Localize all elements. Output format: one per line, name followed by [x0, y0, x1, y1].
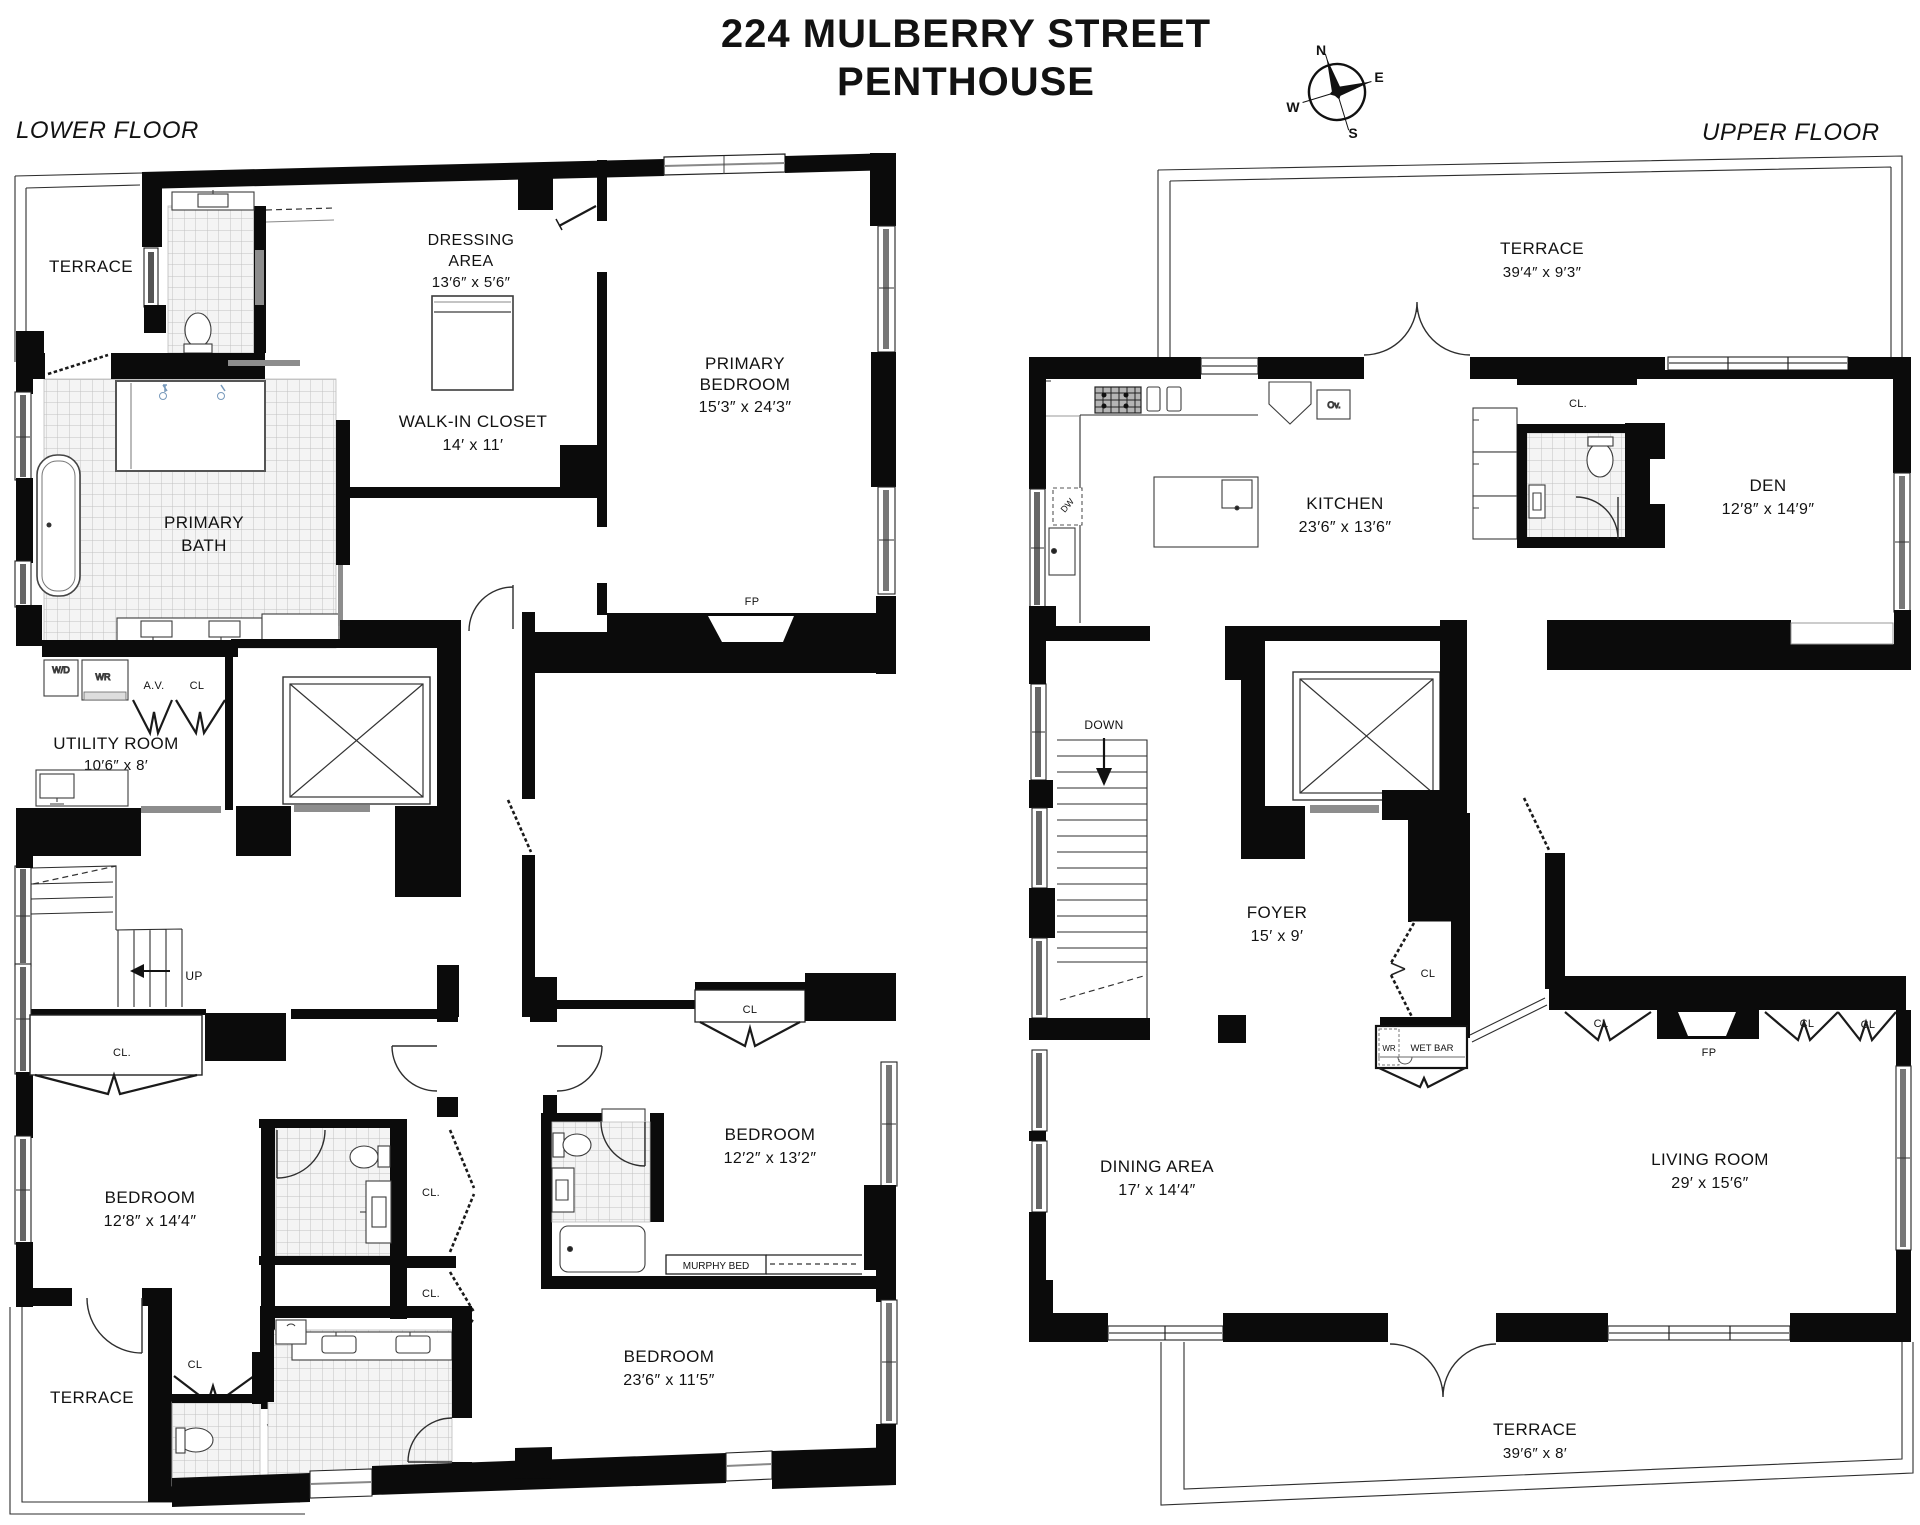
- svg-text:WR: WR: [1382, 1044, 1396, 1053]
- svg-text:UTILITY ROOM: UTILITY ROOM: [53, 734, 178, 753]
- svg-text:DEN: DEN: [1749, 476, 1786, 495]
- svg-text:CL.: CL.: [422, 1288, 440, 1300]
- svg-text:TERRACE: TERRACE: [49, 257, 133, 276]
- svg-text:E: E: [1374, 69, 1383, 85]
- svg-text:CL: CL: [188, 1359, 203, 1371]
- svg-text:DOWN: DOWN: [1084, 718, 1123, 732]
- svg-text:W: W: [1286, 99, 1300, 115]
- svg-text:PENTHOUSE: PENTHOUSE: [837, 60, 1095, 104]
- svg-text:CL: CL: [190, 680, 205, 692]
- svg-text:TERRACE: TERRACE: [1500, 239, 1584, 258]
- svg-text:12′8″ x 14′9″: 12′8″ x 14′9″: [1722, 501, 1815, 518]
- svg-text:39′6″ x 8′: 39′6″ x 8′: [1503, 1445, 1567, 1462]
- svg-text:KITCHEN: KITCHEN: [1306, 494, 1383, 513]
- svg-text:FP: FP: [745, 596, 760, 608]
- svg-text:15′ x 9′: 15′ x 9′: [1251, 928, 1304, 945]
- svg-text:CL.: CL.: [422, 1187, 440, 1199]
- svg-text:TERRACE: TERRACE: [50, 1388, 134, 1407]
- svg-text:AREA: AREA: [448, 253, 493, 270]
- svg-text:LOWER FLOOR: LOWER FLOOR: [16, 117, 199, 144]
- svg-text:15′3″ x 24′3″: 15′3″ x 24′3″: [699, 399, 792, 416]
- svg-text:CL.: CL.: [1569, 398, 1587, 410]
- svg-text:14′ x 11′: 14′ x 11′: [443, 437, 504, 454]
- svg-text:224 MULBERRY STREET: 224 MULBERRY STREET: [721, 12, 1211, 56]
- svg-text:CL: CL: [743, 1004, 758, 1016]
- svg-text:PRIMARY: PRIMARY: [705, 354, 785, 373]
- svg-text:23′6″ x 13′6″: 23′6″ x 13′6″: [1299, 519, 1392, 536]
- svg-text:BATH: BATH: [181, 536, 227, 555]
- svg-text:17′ x 14′4″: 17′ x 14′4″: [1118, 1182, 1195, 1199]
- svg-text:S: S: [1348, 125, 1357, 141]
- svg-text:BEDROOM: BEDROOM: [725, 1125, 816, 1144]
- svg-text:39′4″ x 9′3″: 39′4″ x 9′3″: [1503, 264, 1582, 281]
- svg-text:UPPER FLOOR: UPPER FLOOR: [1702, 119, 1880, 146]
- svg-text:29′ x 15′6″: 29′ x 15′6″: [1671, 1175, 1748, 1192]
- svg-text:FP: FP: [1702, 1047, 1717, 1059]
- svg-text:WALK-IN CLOSET: WALK-IN CLOSET: [399, 412, 548, 431]
- svg-text:BEDROOM: BEDROOM: [105, 1188, 196, 1207]
- svg-text:A.V.: A.V.: [144, 680, 165, 692]
- svg-text:12′8″ x 14′4″: 12′8″ x 14′4″: [104, 1213, 197, 1230]
- svg-text:N: N: [1316, 42, 1326, 58]
- svg-text:WET BAR: WET BAR: [1410, 1043, 1453, 1054]
- svg-text:LIVING ROOM: LIVING ROOM: [1651, 1150, 1769, 1169]
- svg-text:CL.: CL.: [113, 1047, 131, 1059]
- svg-text:UP: UP: [185, 969, 202, 983]
- svg-text:W/D: W/D: [52, 665, 70, 675]
- svg-text:FOYER: FOYER: [1247, 903, 1308, 922]
- svg-text:PRIMARY: PRIMARY: [164, 513, 244, 532]
- svg-text:DRESSING: DRESSING: [428, 232, 515, 249]
- svg-text:WR: WR: [96, 672, 111, 682]
- svg-text:MURPHY BED: MURPHY BED: [683, 1261, 750, 1272]
- svg-text:Ov.: Ov.: [1327, 400, 1340, 410]
- svg-text:CL: CL: [1421, 968, 1436, 980]
- svg-text:TERRACE: TERRACE: [1493, 1420, 1577, 1439]
- svg-text:BEDROOM: BEDROOM: [624, 1347, 715, 1366]
- svg-text:DINING AREA: DINING AREA: [1100, 1157, 1214, 1176]
- svg-text:BEDROOM: BEDROOM: [700, 375, 791, 394]
- svg-text:12′2″ x 13′2″: 12′2″ x 13′2″: [724, 1150, 817, 1167]
- svg-text:23′6″ x 11′5″: 23′6″ x 11′5″: [623, 1372, 715, 1389]
- svg-text:13′6″ x 5′6″: 13′6″ x 5′6″: [432, 274, 511, 291]
